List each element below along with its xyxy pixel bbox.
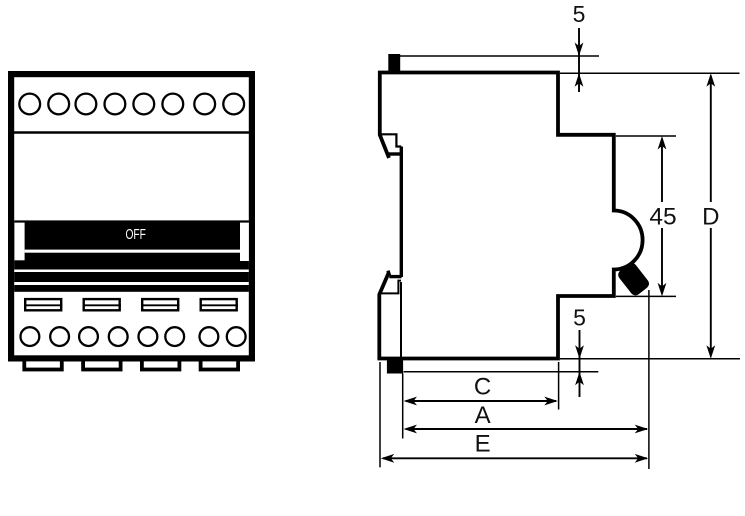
svg-text:A: A [475,402,491,429]
svg-text:45: 45 [649,203,676,230]
svg-text:E: E [475,430,491,457]
svg-text:5: 5 [573,304,586,330]
svg-text:D: D [702,203,719,230]
svg-text:5: 5 [573,1,586,27]
svg-text:C: C [474,374,491,401]
svg-text:OFF: OFF [125,227,146,243]
